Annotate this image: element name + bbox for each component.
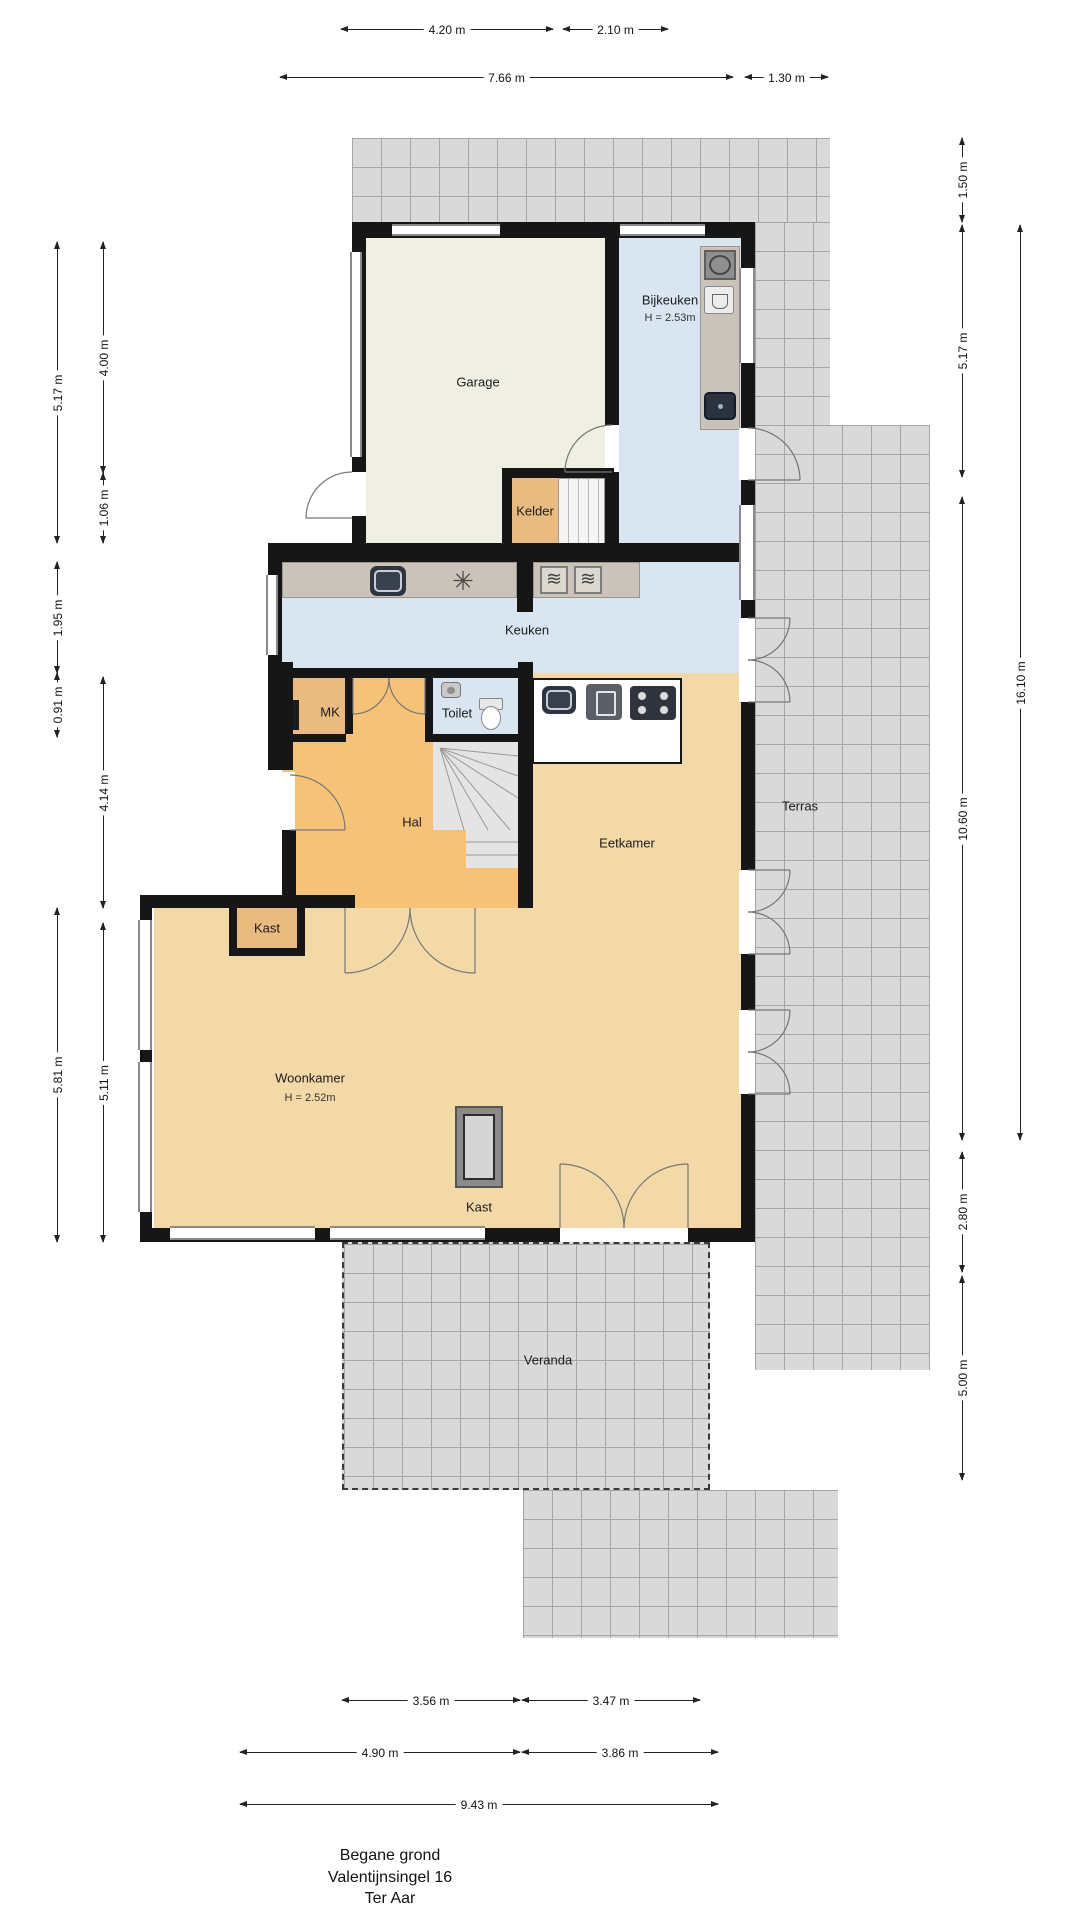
dimension: 1.95 m xyxy=(57,562,58,673)
dimension: 7.66 m xyxy=(280,77,733,78)
room-label-kelder: Kelder xyxy=(516,504,554,519)
title-floor: Begane grond xyxy=(240,1845,540,1867)
room-label-woonkamer: Woonkamer xyxy=(275,1071,345,1086)
dimension: 16.10 m xyxy=(1020,225,1021,1140)
dimension: 0.91 m xyxy=(57,673,58,737)
floorplan-canvas: Garage Bijkeuken H = 2.53m Kelder Keuken… xyxy=(0,0,1080,1920)
room-label-toilet: Toilet xyxy=(442,706,472,721)
room-label-kast-woonkamer: Kast xyxy=(466,1200,492,1215)
dimension: 5.17 m xyxy=(962,225,963,477)
room-label-garage: Garage xyxy=(456,375,499,390)
dimension: 4.90 m xyxy=(240,1752,520,1753)
room-label-keuken: Keuken xyxy=(505,623,549,638)
stair-treads xyxy=(440,748,518,855)
dimension: 5.11 m xyxy=(103,923,104,1242)
dimension: 1.30 m xyxy=(745,77,828,78)
room-height-bijkeuken: H = 2.53m xyxy=(644,312,695,324)
room-label-mk: MK xyxy=(320,705,340,720)
dimension: 2.80 m xyxy=(962,1152,963,1272)
dimension: 4.00 m xyxy=(103,242,104,473)
dimension: 2.10 m xyxy=(563,29,668,30)
room-label-kast-hal: Kast xyxy=(254,921,280,936)
room-height-woonkamer: H = 2.52m xyxy=(284,1092,335,1104)
dimension: 5.17 m xyxy=(57,242,58,543)
door-arcs xyxy=(0,0,1080,1920)
dimension: 1.06 m xyxy=(103,473,104,543)
dimension: 3.86 m xyxy=(522,1752,718,1753)
room-label-veranda: Veranda xyxy=(524,1353,572,1368)
room-label-bijkeuken: Bijkeuken xyxy=(642,293,698,308)
dimension: 10.60 m xyxy=(962,497,963,1140)
room-label-terras: Terras xyxy=(782,799,818,814)
title-city: Ter Aar xyxy=(240,1888,540,1910)
dimension: 4.20 m xyxy=(341,29,553,30)
room-label-eetkamer: Eetkamer xyxy=(599,836,655,851)
dimension: 9.43 m xyxy=(240,1804,718,1805)
room-label-hal: Hal xyxy=(402,815,422,830)
plan-title: Begane grond Valentijnsingel 16 Ter Aar xyxy=(240,1845,540,1910)
dimension: 4.14 m xyxy=(103,677,104,908)
dimension: 5.81 m xyxy=(57,908,58,1242)
dimension: 1.50 m xyxy=(962,138,963,222)
dimension: 5.00 m xyxy=(962,1276,963,1480)
dimension: 3.47 m xyxy=(522,1700,700,1701)
title-address: Valentijnsingel 16 xyxy=(240,1867,540,1889)
dimension: 3.56 m xyxy=(342,1700,520,1701)
